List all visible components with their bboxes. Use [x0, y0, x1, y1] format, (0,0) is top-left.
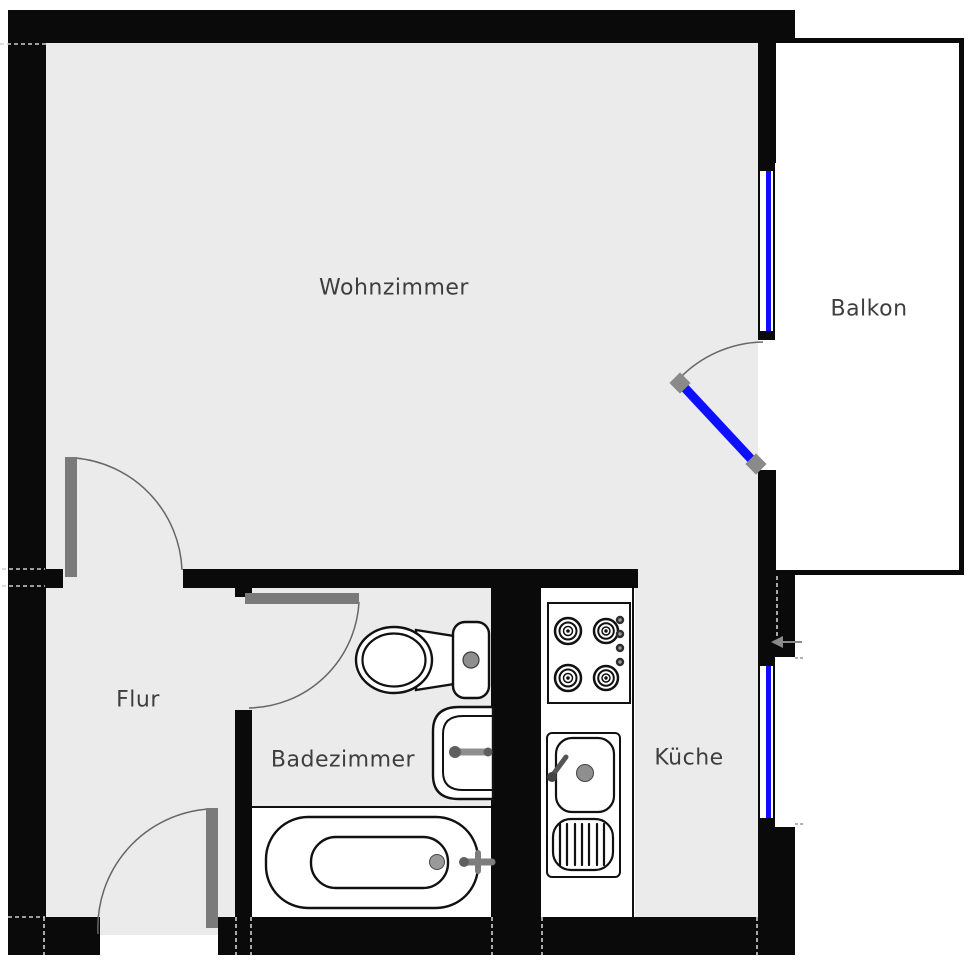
- plan-overlay: [0, 0, 980, 968]
- floor-plan: Wohnzimmer Balkon Flur Badezimmer Küche: [0, 0, 980, 968]
- burner: [594, 619, 618, 643]
- room-label-balkon: Balkon: [830, 297, 907, 322]
- tub-drain: [430, 855, 445, 870]
- toilet: [356, 622, 489, 698]
- burner: [555, 665, 581, 691]
- burner: [594, 666, 618, 690]
- burner: [555, 618, 581, 644]
- drainboard-ribs: [560, 824, 604, 865]
- room-label-wohnzimmer: Wohnzimmer: [319, 276, 469, 301]
- entrance-door: [98, 808, 218, 934]
- window-projection-ticks: [795, 658, 804, 824]
- bathtub: [266, 817, 492, 908]
- sink-drain: [577, 765, 594, 782]
- door-leaf: [65, 457, 77, 577]
- door-leaf: [245, 593, 359, 604]
- room-label-kueche: Küche: [654, 746, 723, 771]
- bathroom-sink: [433, 707, 493, 799]
- entry-arrow: [771, 636, 802, 648]
- toilet-bowl: [356, 627, 432, 693]
- flush-button: [463, 652, 479, 668]
- room-label-flur: Flur: [116, 688, 160, 713]
- living-room-door: [65, 457, 182, 577]
- room-label-badezimmer: Badezimmer: [271, 748, 415, 773]
- kitchen-sink: [547, 733, 620, 877]
- stove: [548, 603, 630, 703]
- glazed-door-leaf: [684, 387, 751, 459]
- balcony-door: [669, 342, 766, 475]
- tub-outer: [266, 817, 478, 908]
- door-leaf: [206, 808, 218, 928]
- bathroom-door: [245, 593, 359, 708]
